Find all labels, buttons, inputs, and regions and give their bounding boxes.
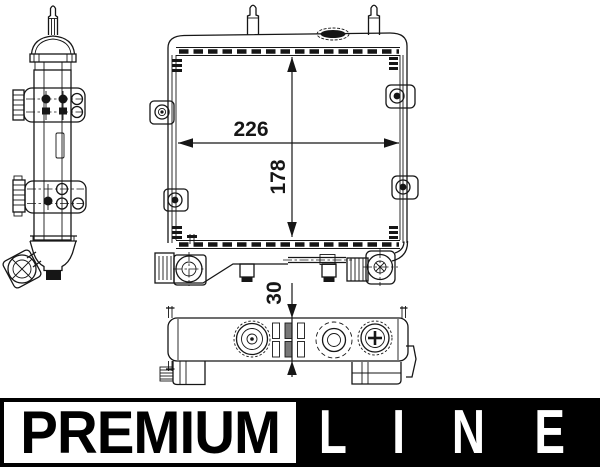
arrowhead-left-icon: [178, 138, 193, 148]
arrowhead-right-icon: [384, 138, 399, 148]
line-letter-n: N: [451, 402, 484, 464]
dimension-height: 178: [267, 57, 297, 237]
front-top-crimp-strip: [176, 48, 400, 56]
dimension-height-label: 178: [267, 159, 290, 194]
front-left-pin: [248, 5, 259, 35]
dimension-depth-label: 30: [263, 281, 286, 304]
bottom-right-foot: [352, 346, 416, 384]
dimension-width-label: 226: [233, 118, 268, 141]
arrowhead-down-icon: [287, 222, 297, 237]
line-letter-l: L: [319, 402, 347, 464]
dimension-width: 226: [178, 118, 399, 148]
front-bracket-upper-left: [150, 101, 174, 124]
front-right-pin: [369, 5, 380, 35]
bottom-left-foot: [160, 361, 205, 385]
bottom-port-center: [316, 322, 352, 358]
front-bracket-upper-right: [386, 85, 415, 108]
technical-drawing: 226 178 30: [0, 0, 600, 398]
side-dome-cap: [30, 36, 76, 70]
corner-tabs: [172, 57, 398, 239]
arrowhead-up-icon: [287, 57, 297, 72]
side-view: [2, 6, 86, 289]
premium-label: PREMIUM: [20, 403, 280, 463]
side-lower-bracket: [13, 176, 86, 216]
bottom-port-right: [358, 321, 392, 355]
premium-box: PREMIUM: [0, 398, 300, 467]
front-bottom-crimp-strip: [176, 241, 400, 249]
cooling-slats: [273, 323, 305, 357]
line-letter-i: I: [392, 402, 405, 464]
bottom-port-left: [234, 321, 270, 357]
line-letter-e: E: [534, 402, 565, 464]
line-box: L I N E: [300, 398, 600, 467]
arrowhead-down-icon: [287, 304, 297, 318]
product-drawing-page: 226 178 30 PREMIUM L I N E: [0, 0, 600, 472]
side-upper-bracket: [13, 88, 85, 122]
premium-line-banner: PREMIUM L I N E: [0, 398, 600, 467]
front-bracket-lower-right: [392, 176, 418, 199]
filler-cap: [317, 28, 349, 40]
side-outlet-elbow: [2, 236, 77, 289]
arrowhead-up-icon: [287, 361, 297, 375]
side-top-pin: [49, 6, 58, 35]
front-bottom-tank: [155, 234, 408, 286]
